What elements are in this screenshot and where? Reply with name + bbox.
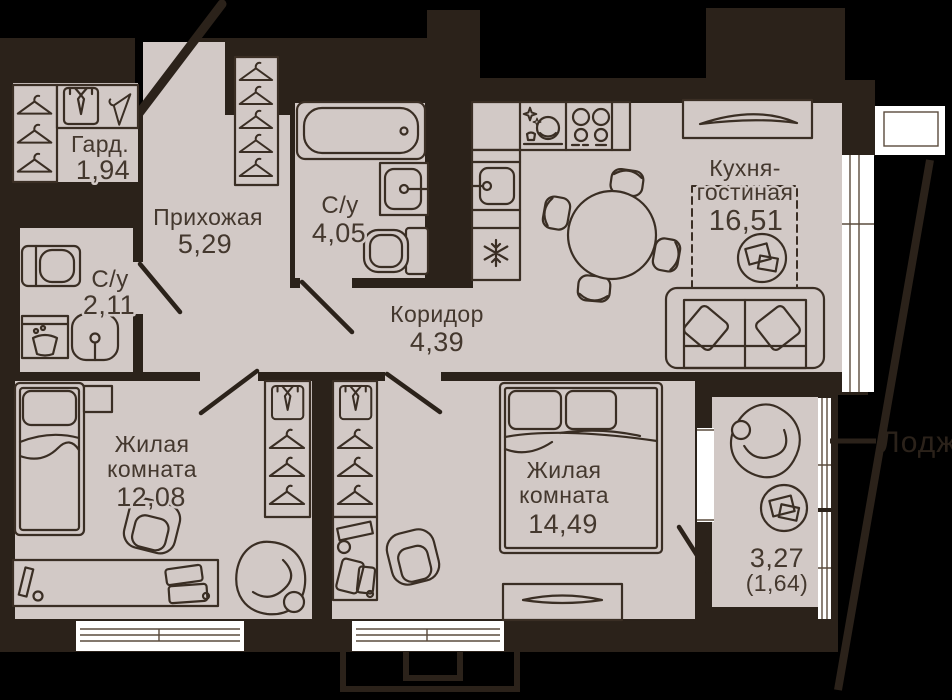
room-label-bedroom-2-name-2: комната (519, 482, 609, 508)
room-label-bathroom-small-name: С/у (91, 266, 128, 293)
toilet-icon (364, 228, 428, 274)
room-label-bedroom-1-name-2: комната (107, 456, 197, 482)
kitchen-column-icon (472, 150, 520, 280)
window-loggia-1 (818, 398, 831, 508)
room-label-corridor-area: 4,39 (410, 327, 464, 357)
closet-icon (13, 85, 57, 182)
room-label-bedroom-2-name-1: Жилая (527, 457, 602, 483)
window-kitchen (842, 155, 874, 392)
room-label-bathroom-large-area: 4,05 (312, 218, 366, 248)
wardrobe-icon (333, 381, 377, 517)
room-label-hallway-area: 5,29 (178, 229, 232, 259)
room-label-kitchen-area: 16,51 (709, 205, 784, 237)
toilet-icon (22, 246, 80, 286)
hallway-closet-icon (235, 57, 278, 185)
rug-icon (738, 234, 786, 282)
nightstand-icon (84, 386, 112, 412)
room-label-wardrobe-name: Гард. (71, 131, 129, 157)
dining-table-icon (568, 191, 656, 279)
side-table-icon (761, 485, 807, 531)
room-label-wardrobe-area: 1,94 (76, 155, 130, 185)
room-label-bedroom-1-area: 12,08 (116, 482, 186, 512)
bathtub-icon (297, 102, 425, 159)
dresser-icon (503, 584, 622, 620)
window-loggia-2 (818, 512, 831, 619)
window-bedroom-2 (352, 621, 504, 651)
closet-shelf-icon (57, 85, 138, 128)
floor-plan-canvas: Гард. 1,94 Прихожая 5,29 С/у 4,05 С/у 2,… (0, 0, 952, 700)
room-label-bathroom-small-area: 2,11 (83, 290, 135, 320)
balcony-slab-above (875, 106, 945, 155)
adjacent-loggia-label: Лоджия (880, 426, 952, 459)
room-label-loggia-area-reduced: (1,64) (746, 570, 808, 596)
bean-bag-icon (236, 542, 305, 615)
room-label-bedroom-1-name-1: Жилая (115, 431, 190, 457)
sofa-icon (666, 288, 824, 368)
room-label-hallway-name: Прихожая (153, 204, 263, 230)
desk-icon (333, 517, 377, 600)
single-bed-icon (15, 383, 84, 535)
wardrobe-icon (265, 381, 310, 517)
desk-icon (13, 560, 218, 606)
room-label-kitchen-name-2: гостиная (697, 179, 794, 205)
room-label-corridor-name: Коридор (390, 301, 484, 327)
room-label-bedroom-2-area: 14,49 (528, 509, 598, 539)
kitchen-counter-icon (472, 102, 630, 150)
washing-machine-icon (22, 316, 68, 358)
sink-icon (72, 314, 118, 360)
room-label-loggia-area: 3,27 (750, 543, 804, 573)
room-label-bathroom-large-name: С/у (321, 192, 358, 219)
sink-icon (380, 163, 428, 215)
room-label-kitchen-name-1: Кухня- (709, 155, 781, 181)
door-opening-loggia (697, 428, 714, 522)
floor-plan: Гард. 1,94 Прихожая 5,29 С/у 4,05 С/у 2,… (0, 0, 952, 700)
tv-console-icon (683, 100, 812, 138)
window-bedroom-1 (76, 621, 244, 651)
